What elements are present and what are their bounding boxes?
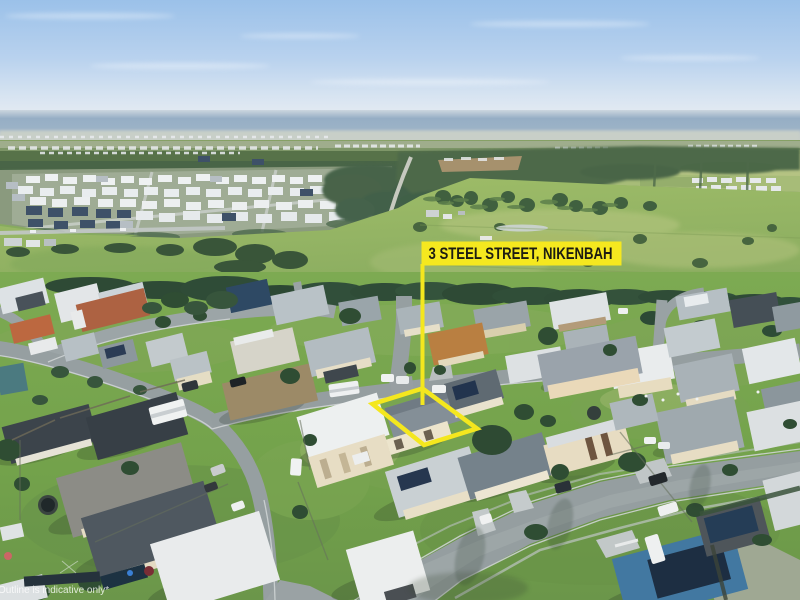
svg-text:3 STEEL STREET, NIKENBAH: 3 STEEL STREET, NIKENBAH [429,244,613,263]
svg-text:Outline is indicative only*: Outline is indicative only* [0,585,109,596]
